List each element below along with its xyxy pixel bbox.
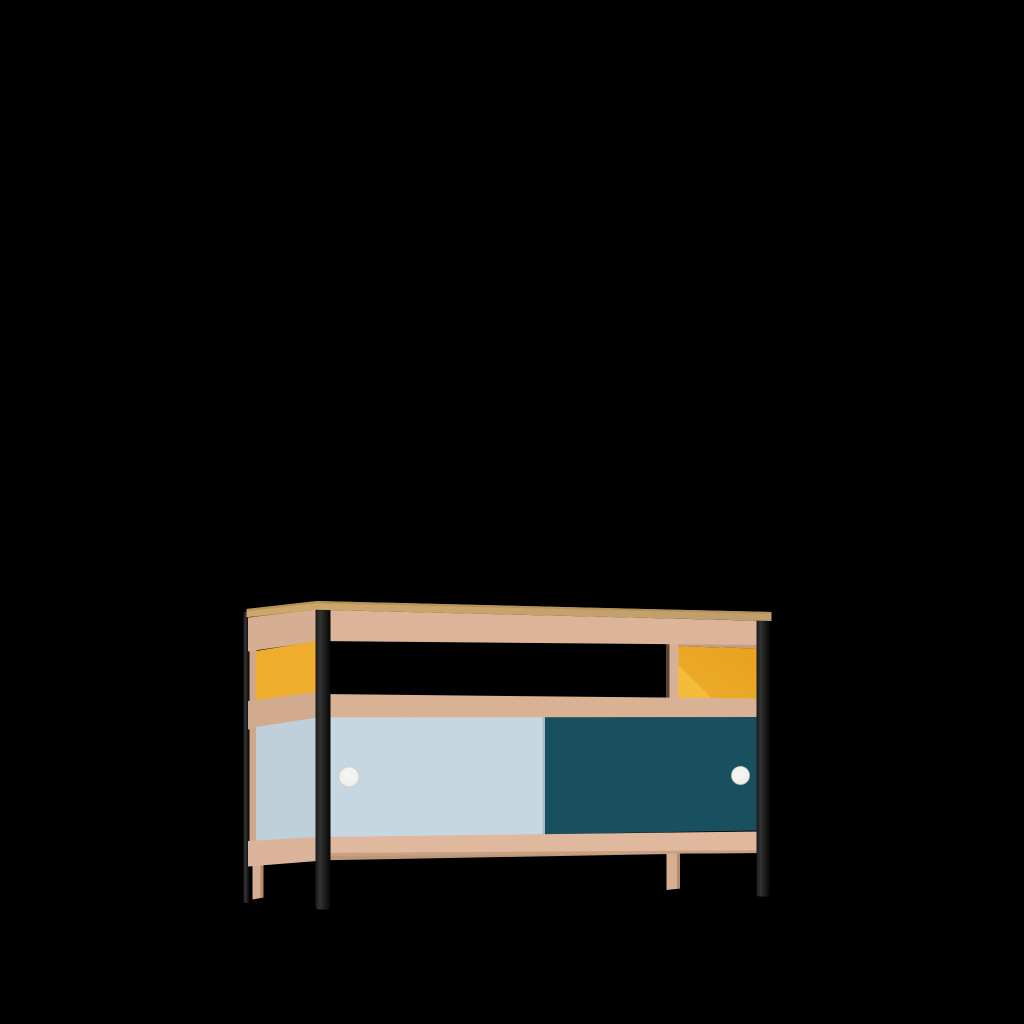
render-canvas: [0, 0, 1024, 1024]
rear-right-wood-leg-shade: [677, 849, 680, 889]
teal-door-handle: [732, 767, 750, 785]
blue-door-handle: [339, 767, 359, 787]
right-shelf-compartment: [666, 638, 757, 702]
rear-right-wood-leg: [667, 849, 681, 890]
black-background: [0, 0, 1024, 1024]
sliding-door-teal: [545, 713, 758, 834]
left-rear-corner-upright: [250, 617, 257, 852]
left-side-face: [248, 610, 317, 867]
front-right-metal-leg: [757, 619, 771, 897]
sideboard-product-image: [0, 0, 1024, 1024]
front-left-metal-leg: [316, 609, 331, 910]
compartment-divider-shadow: [666, 638, 670, 700]
door-seam-shadow: [543, 715, 546, 835]
left-side-blue-panel: [256, 718, 317, 849]
